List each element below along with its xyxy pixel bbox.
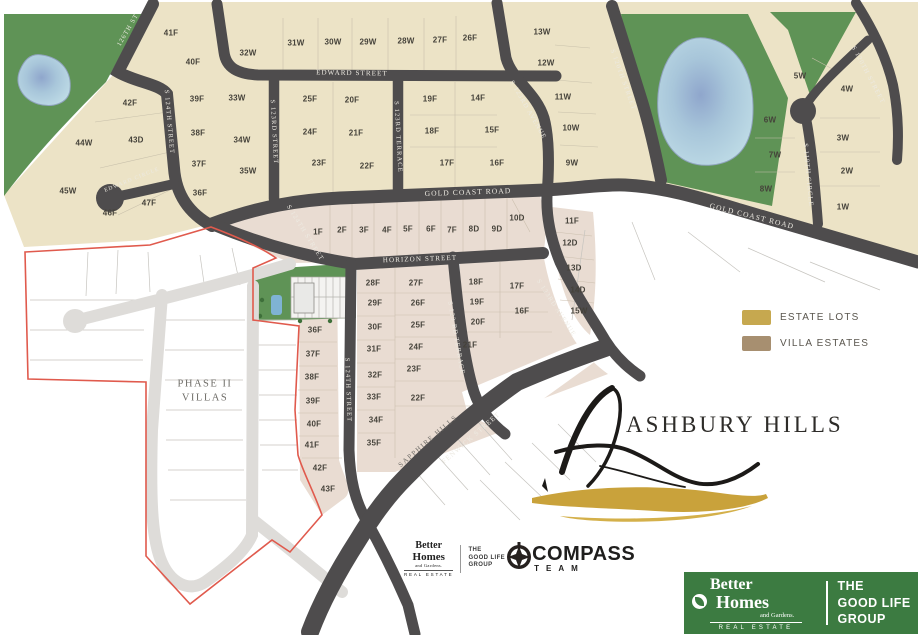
compass-team-logo: COMPASS TEAM xyxy=(527,545,635,573)
bhg-small-gardens: and Gardens. xyxy=(404,563,453,568)
legend-item-villa-estates: VILLA ESTATES xyxy=(742,336,869,351)
bhg-box-real-estate: REAL ESTATE xyxy=(710,622,802,631)
bhg-box-group: THE GOOD LIFE GROUP xyxy=(838,578,911,629)
compass-subtitle: TEAM xyxy=(534,564,635,573)
legend-swatch xyxy=(742,310,771,325)
ashbury-hills-plat-map: 41F40F32W31W30W29W28W27F26F13W12W11W10W9… xyxy=(0,0,918,635)
s119th-circle-bulb xyxy=(790,98,816,124)
leaf-icon xyxy=(692,594,707,609)
bhg-small-logo: Better Homes and Gardens. REAL ESTATE xyxy=(404,540,453,577)
brand-divider xyxy=(460,545,461,573)
compass-title: COMPASS xyxy=(532,545,635,563)
bhg-small-better: Better xyxy=(404,540,453,551)
bhg-box-logo: Better Homes and Gardens. REAL ESTATE xyxy=(684,576,822,631)
bhg-small-real-estate: REAL ESTATE xyxy=(404,570,453,577)
edward-circle-bulb xyxy=(96,184,124,212)
bhg-small-homes: Homes xyxy=(404,551,453,563)
glg-line1: THE xyxy=(468,547,505,555)
legend-label: VILLA ESTATES xyxy=(780,338,869,349)
good-life-group-small: THE GOOD LIFE GROUP xyxy=(468,547,505,570)
legend: ESTATE LOTSVILLA ESTATES xyxy=(742,310,869,362)
glg-line2: GOOD LIFE xyxy=(468,555,505,563)
bhg-box-group-group: GROUP xyxy=(838,611,911,628)
legend-swatch xyxy=(742,336,771,351)
ashbury-logo-art xyxy=(532,388,768,522)
legend-label: ESTATE LOTS xyxy=(780,312,860,323)
branding-strip: Better Homes and Gardens. REAL ESTATE TH… xyxy=(404,540,635,577)
bhg-box-homes: Homes xyxy=(716,592,822,613)
bhg-box-divider xyxy=(826,581,828,625)
bhg-box-group-the: THE xyxy=(838,578,911,595)
glg-line3: GROUP xyxy=(468,562,505,570)
bhg-box-group-goodlife: GOOD LIFE xyxy=(838,595,911,612)
pool xyxy=(271,295,282,315)
logo-wordmark: ASHBURY HILLS xyxy=(626,412,844,438)
clubhouse-building xyxy=(294,283,314,313)
legend-item-estate-lots: ESTATE LOTS xyxy=(742,310,869,325)
bhg-box-gardens: and Gardens. xyxy=(760,612,822,619)
bhg-green-box: Better Homes and Gardens. REAL ESTATE TH… xyxy=(684,572,918,634)
villa-cul-de-sac xyxy=(63,309,87,333)
